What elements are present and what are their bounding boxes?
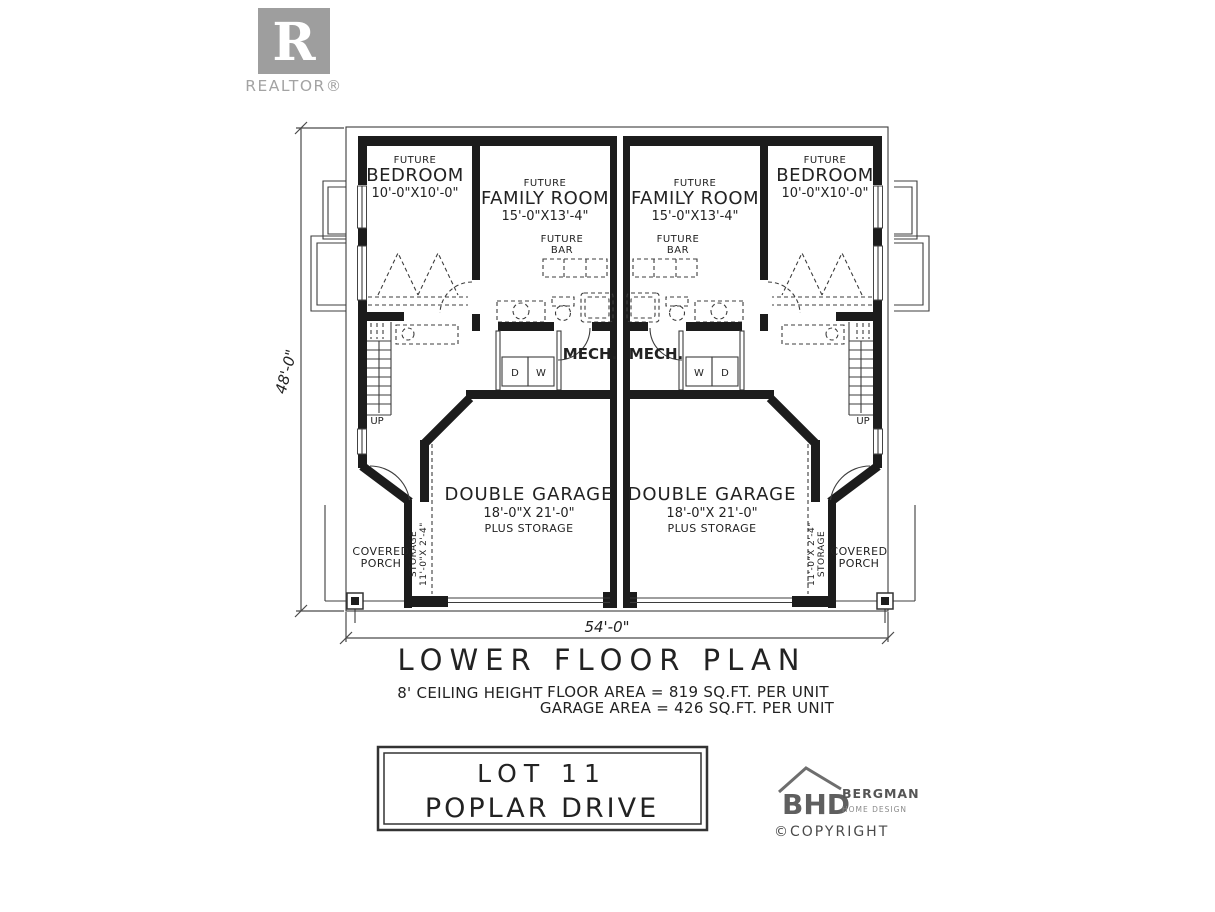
plan-title: LOWER FLOOR PLAN xyxy=(398,643,807,677)
height-dimension-label: 48'-0" xyxy=(272,348,301,396)
designer-monogram: BHD xyxy=(782,788,850,821)
left-garage-note: PLUS STORAGE xyxy=(484,522,573,535)
right-storage-label: STORAGE xyxy=(817,531,827,577)
right-washer-label: W xyxy=(694,368,704,379)
right-bedroom-label: BEDROOM xyxy=(776,165,873,186)
copyright-label: ©COPYRIGHT xyxy=(774,824,889,840)
garage-area-note: GARAGE AREA = 426 SQ.FT. PER UNIT xyxy=(540,699,835,717)
right-bar-label: BAR xyxy=(667,245,689,256)
title-block: LOWER FLOOR PLAN 8' CEILING HEIGHT FLOOR… xyxy=(397,643,834,717)
left-porch-label-2: PORCH xyxy=(361,557,402,570)
floor-plan-drawing: R REALTOR® xyxy=(0,0,1215,912)
right-family-room-dims: 15'-0"X13'-4" xyxy=(651,209,738,224)
right-mech-label: MECH. xyxy=(629,345,683,363)
realtor-r-icon: R xyxy=(272,12,316,73)
right-bedroom-dims: 10'-0"X10'-0" xyxy=(781,186,868,201)
realtor-logo: R REALTOR® xyxy=(245,8,343,95)
left-storage-label: STORAGE xyxy=(409,531,419,577)
lot-number: LOT 11 xyxy=(477,759,607,788)
left-bar-label: BAR xyxy=(551,245,573,256)
designer-name: BERGMAN xyxy=(842,786,920,801)
porch-post-icon xyxy=(347,593,363,609)
right-storage-dims: 11'-0"X 2'-4" xyxy=(807,522,817,586)
designer-tagline: HOME DESIGN xyxy=(842,805,907,814)
window-wells xyxy=(311,181,346,311)
left-unit-labels: FUTURE BEDROOM 10'-0"X10'-0" FUTURE FAMI… xyxy=(352,155,617,586)
realtor-wordmark: REALTOR® xyxy=(245,77,343,95)
ceiling-height-note: 8' CEILING HEIGHT xyxy=(397,684,543,702)
left-garage-dims: 18'-0"X 21'-0" xyxy=(483,506,574,521)
lot-street: POPLAR DRIVE xyxy=(425,793,659,824)
left-storage-dims: 11'-0"X 2'-4" xyxy=(419,522,429,586)
left-bar-future-label: FUTURE xyxy=(541,234,584,245)
left-family-room-dims: 15'-0"X13'-4" xyxy=(501,209,588,224)
lot-label-box: LOT 11 POPLAR DRIVE xyxy=(378,747,707,830)
width-dimension-label: 54'-0" xyxy=(584,618,629,636)
floor-plan-page: R REALTOR® xyxy=(0,0,1215,912)
future-bath-fixtures xyxy=(497,293,613,322)
designer-logo: BHD BERGMAN HOME DESIGN ©COPYRIGHT xyxy=(774,768,920,840)
right-porch-label-2: PORCH xyxy=(839,557,880,570)
left-bedroom-dims: 10'-0"X10'-0" xyxy=(371,186,458,201)
left-washer-label: W xyxy=(536,368,546,379)
right-garage-label: DOUBLE GARAGE xyxy=(627,484,796,505)
left-garage-label: DOUBLE GARAGE xyxy=(444,484,613,505)
right-bar-future-label: FUTURE xyxy=(657,234,700,245)
left-family-room-label: FAMILY ROOM xyxy=(481,188,609,209)
left-stairs-up-label: UP xyxy=(370,416,383,427)
right-stairs-up-label: UP xyxy=(856,416,869,427)
right-dryer-label: D xyxy=(721,368,729,379)
left-bedroom-label: BEDROOM xyxy=(366,165,463,186)
left-mech-label: MECH. xyxy=(563,345,617,363)
left-dryer-label: D xyxy=(511,368,519,379)
right-garage-note: PLUS STORAGE xyxy=(667,522,756,535)
right-garage-dims: 18'-0"X 21'-0" xyxy=(666,506,757,521)
right-family-room-label: FAMILY ROOM xyxy=(631,188,759,209)
